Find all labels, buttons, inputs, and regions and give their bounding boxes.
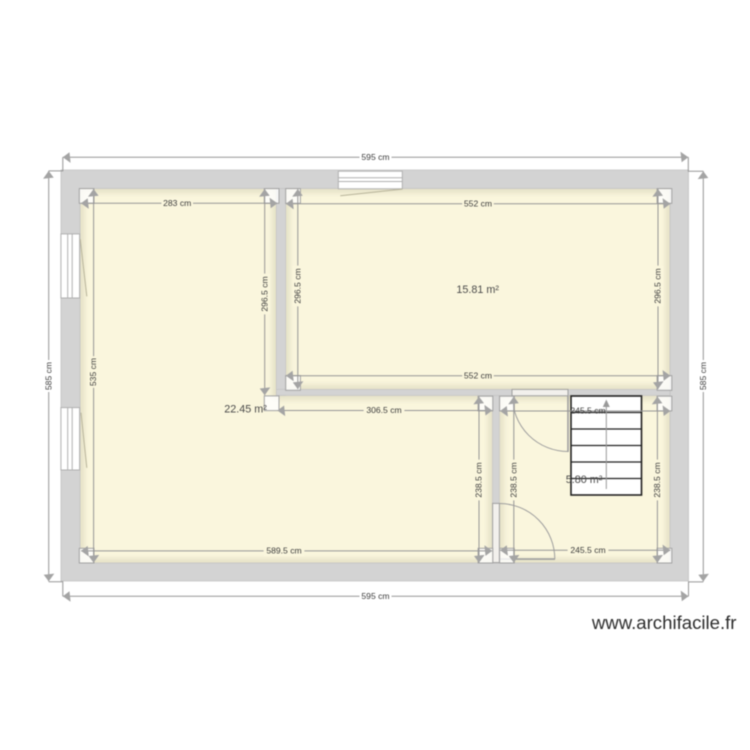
svg-text:552 cm: 552 cm (464, 198, 492, 208)
svg-text:306.5 cm: 306.5 cm (366, 405, 401, 415)
svg-text:283 cm: 283 cm (163, 198, 191, 208)
svg-text:238.5 cm: 238.5 cm (508, 462, 518, 497)
svg-text:595 cm: 595 cm (361, 152, 389, 162)
svg-text:296.5 cm: 296.5 cm (653, 268, 663, 303)
svg-text:296.5 cm: 296.5 cm (292, 268, 302, 303)
svg-text:22.45 m²: 22.45 m² (224, 404, 267, 416)
svg-text:585 cm: 585 cm (43, 362, 53, 390)
svg-text:535 cm: 535 cm (88, 358, 98, 386)
svg-text:5.80 m²: 5.80 m² (566, 474, 603, 486)
svg-text:552 cm: 552 cm (464, 370, 492, 380)
svg-text:296.5 cm: 296.5 cm (259, 276, 269, 311)
svg-text:238.5 cm: 238.5 cm (474, 462, 484, 497)
svg-text:www.archifacile.fr: www.archifacile.fr (591, 612, 737, 633)
svg-text:585 cm: 585 cm (698, 362, 708, 390)
svg-text:245.5 cm: 245.5 cm (570, 545, 605, 555)
svg-text:238.5 cm: 238.5 cm (652, 462, 662, 497)
svg-text:595 cm: 595 cm (361, 591, 389, 601)
svg-text:15.81 m²: 15.81 m² (456, 284, 499, 296)
svg-text:245.5 cm: 245.5 cm (570, 406, 605, 416)
svg-text:589.5 cm: 589.5 cm (266, 546, 301, 556)
